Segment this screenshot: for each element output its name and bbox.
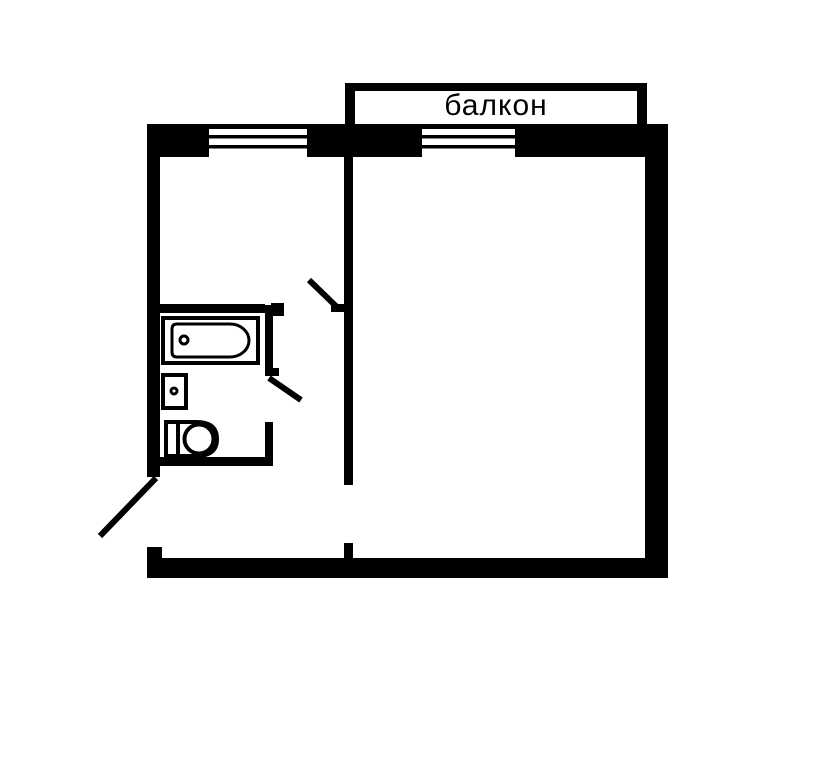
bathroom-door-jamb-tick (265, 368, 279, 376)
apartment-floor-plan: балкон (0, 0, 827, 767)
bathtub-drain (180, 336, 188, 344)
balcony-window-pane-line (422, 135, 515, 139)
balcony-window-opening (422, 129, 515, 157)
bathroom-door-leaf (269, 378, 301, 400)
kitchen-window-opening (209, 129, 307, 157)
balcony-window-sill-line (422, 145, 515, 149)
toilet-bowl (185, 425, 214, 454)
interior-partition-stub (344, 543, 353, 558)
kitchen-bathroom-wall (160, 304, 265, 313)
kitchen-window-pane-line (209, 135, 307, 139)
kitchen-door-leaf (309, 280, 340, 310)
bathroom-right-wall-lower (265, 422, 273, 462)
balcony-label: балкон (355, 90, 637, 122)
right-exterior-wall (645, 124, 668, 578)
entrance-door-jamb-stub (147, 547, 162, 578)
bathroom-right-wall-upper (265, 305, 273, 375)
kitchen-window-sill-line (209, 145, 307, 149)
left-exterior-wall (147, 124, 160, 477)
entrance-door-leaf (100, 478, 156, 536)
interior-partition-wall (344, 157, 353, 485)
bottom-exterior-wall (147, 558, 668, 578)
sink-drain (171, 388, 177, 394)
bathroom-bottom-wall (160, 457, 273, 466)
